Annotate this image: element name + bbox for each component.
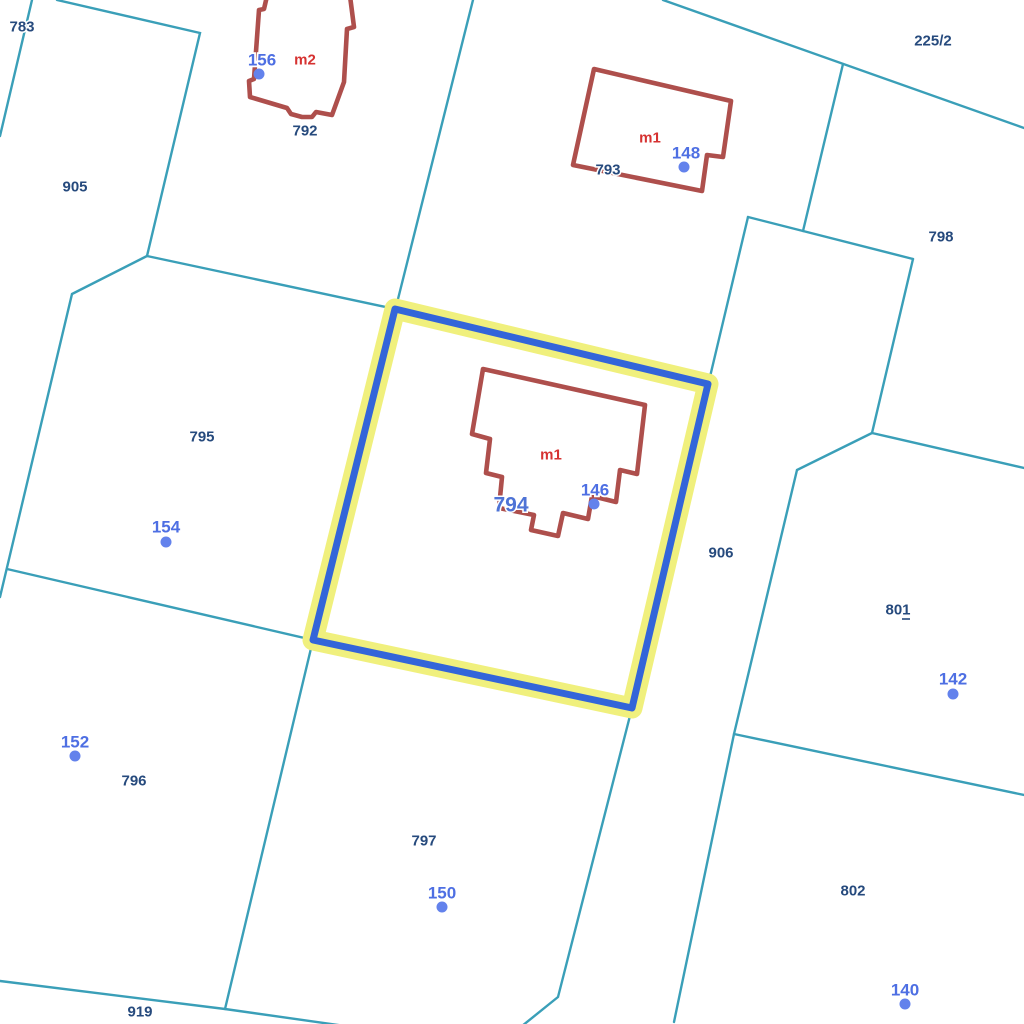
address-points: 156 148 146 154 152 142 150 140: [61, 51, 967, 1010]
building-label-m1-794: m1: [540, 447, 562, 464]
address-point-146[interactable]: 146: [581, 481, 609, 510]
address-label: 150: [428, 884, 456, 903]
parcel-label-792: 792: [292, 123, 317, 140]
parcel-boundary-line: [748, 217, 913, 259]
parcel-boundary-line: [872, 433, 1024, 468]
parcel-label-793: 793: [595, 162, 620, 179]
parcel-boundary-line: [57, 0, 200, 256]
building-label-m1-793: m1: [639, 130, 661, 147]
address-point-152[interactable]: 152: [61, 733, 89, 762]
address-label: 146: [581, 481, 609, 500]
address-label: 152: [61, 733, 89, 752]
address-point-154[interactable]: 154: [152, 518, 181, 548]
address-point-marker[interactable]: [70, 751, 81, 762]
parcel-boundary-line: [0, 981, 345, 1024]
parcel-boundary-line: [709, 217, 748, 381]
building-label-m2: m2: [294, 52, 316, 69]
parcel-label-797: 797: [411, 833, 436, 850]
address-point-marker[interactable]: [679, 162, 690, 173]
address-label: 142: [939, 670, 967, 689]
parcel-label-783: 783: [9, 19, 34, 36]
parcel-boundary-line: [734, 734, 1024, 795]
parcel-label-801: 801: [885, 602, 910, 619]
address-point-marker[interactable]: [900, 999, 911, 1010]
parcel-boundary-line: [663, 0, 1024, 128]
parcel-label-905: 905: [62, 179, 87, 196]
address-point-142[interactable]: 142: [939, 670, 967, 700]
parcel-label-795: 795: [189, 429, 214, 446]
parcel-label-802: 802: [840, 883, 865, 900]
parcel-label-225-2: 225/2: [914, 33, 952, 50]
address-label: 156: [248, 51, 276, 70]
parcel-label-798: 798: [928, 229, 953, 246]
parcel-boundary-line: [0, 256, 147, 597]
address-label: 148: [672, 144, 700, 163]
parcel-label-796: 796: [121, 773, 146, 790]
parcel-boundary-line: [225, 640, 313, 1009]
address-point-marker[interactable]: [254, 69, 265, 80]
parcel-boundary-line: [522, 708, 632, 1024]
map-svg[interactable]: 783 905 792 793 225/2 798 795 906 801 79…: [0, 0, 1024, 1024]
address-point-140[interactable]: 140: [891, 981, 919, 1010]
address-point-marker[interactable]: [589, 499, 600, 510]
parcel-boundary-line: [803, 64, 843, 231]
cadastral-map-canvas[interactable]: 783 905 792 793 225/2 798 795 906 801 79…: [0, 0, 1024, 1024]
selected-parcel-label-794: 794: [493, 494, 528, 517]
address-point-148[interactable]: 148: [672, 144, 700, 173]
address-label: 154: [152, 518, 181, 537]
parcel-boundary-line: [147, 256, 395, 309]
parcel-boundary-line: [396, 0, 473, 307]
address-point-marker[interactable]: [161, 537, 172, 548]
address-point-150[interactable]: 150: [428, 884, 456, 913]
parcel-label-919: 919: [127, 1004, 152, 1021]
parcel-label-906: 906: [708, 545, 733, 562]
address-point-marker[interactable]: [948, 689, 959, 700]
parcel-boundary-line: [7, 569, 313, 640]
address-label: 140: [891, 981, 919, 1000]
building-outlines: [249, 0, 731, 536]
address-point-marker[interactable]: [437, 902, 448, 913]
